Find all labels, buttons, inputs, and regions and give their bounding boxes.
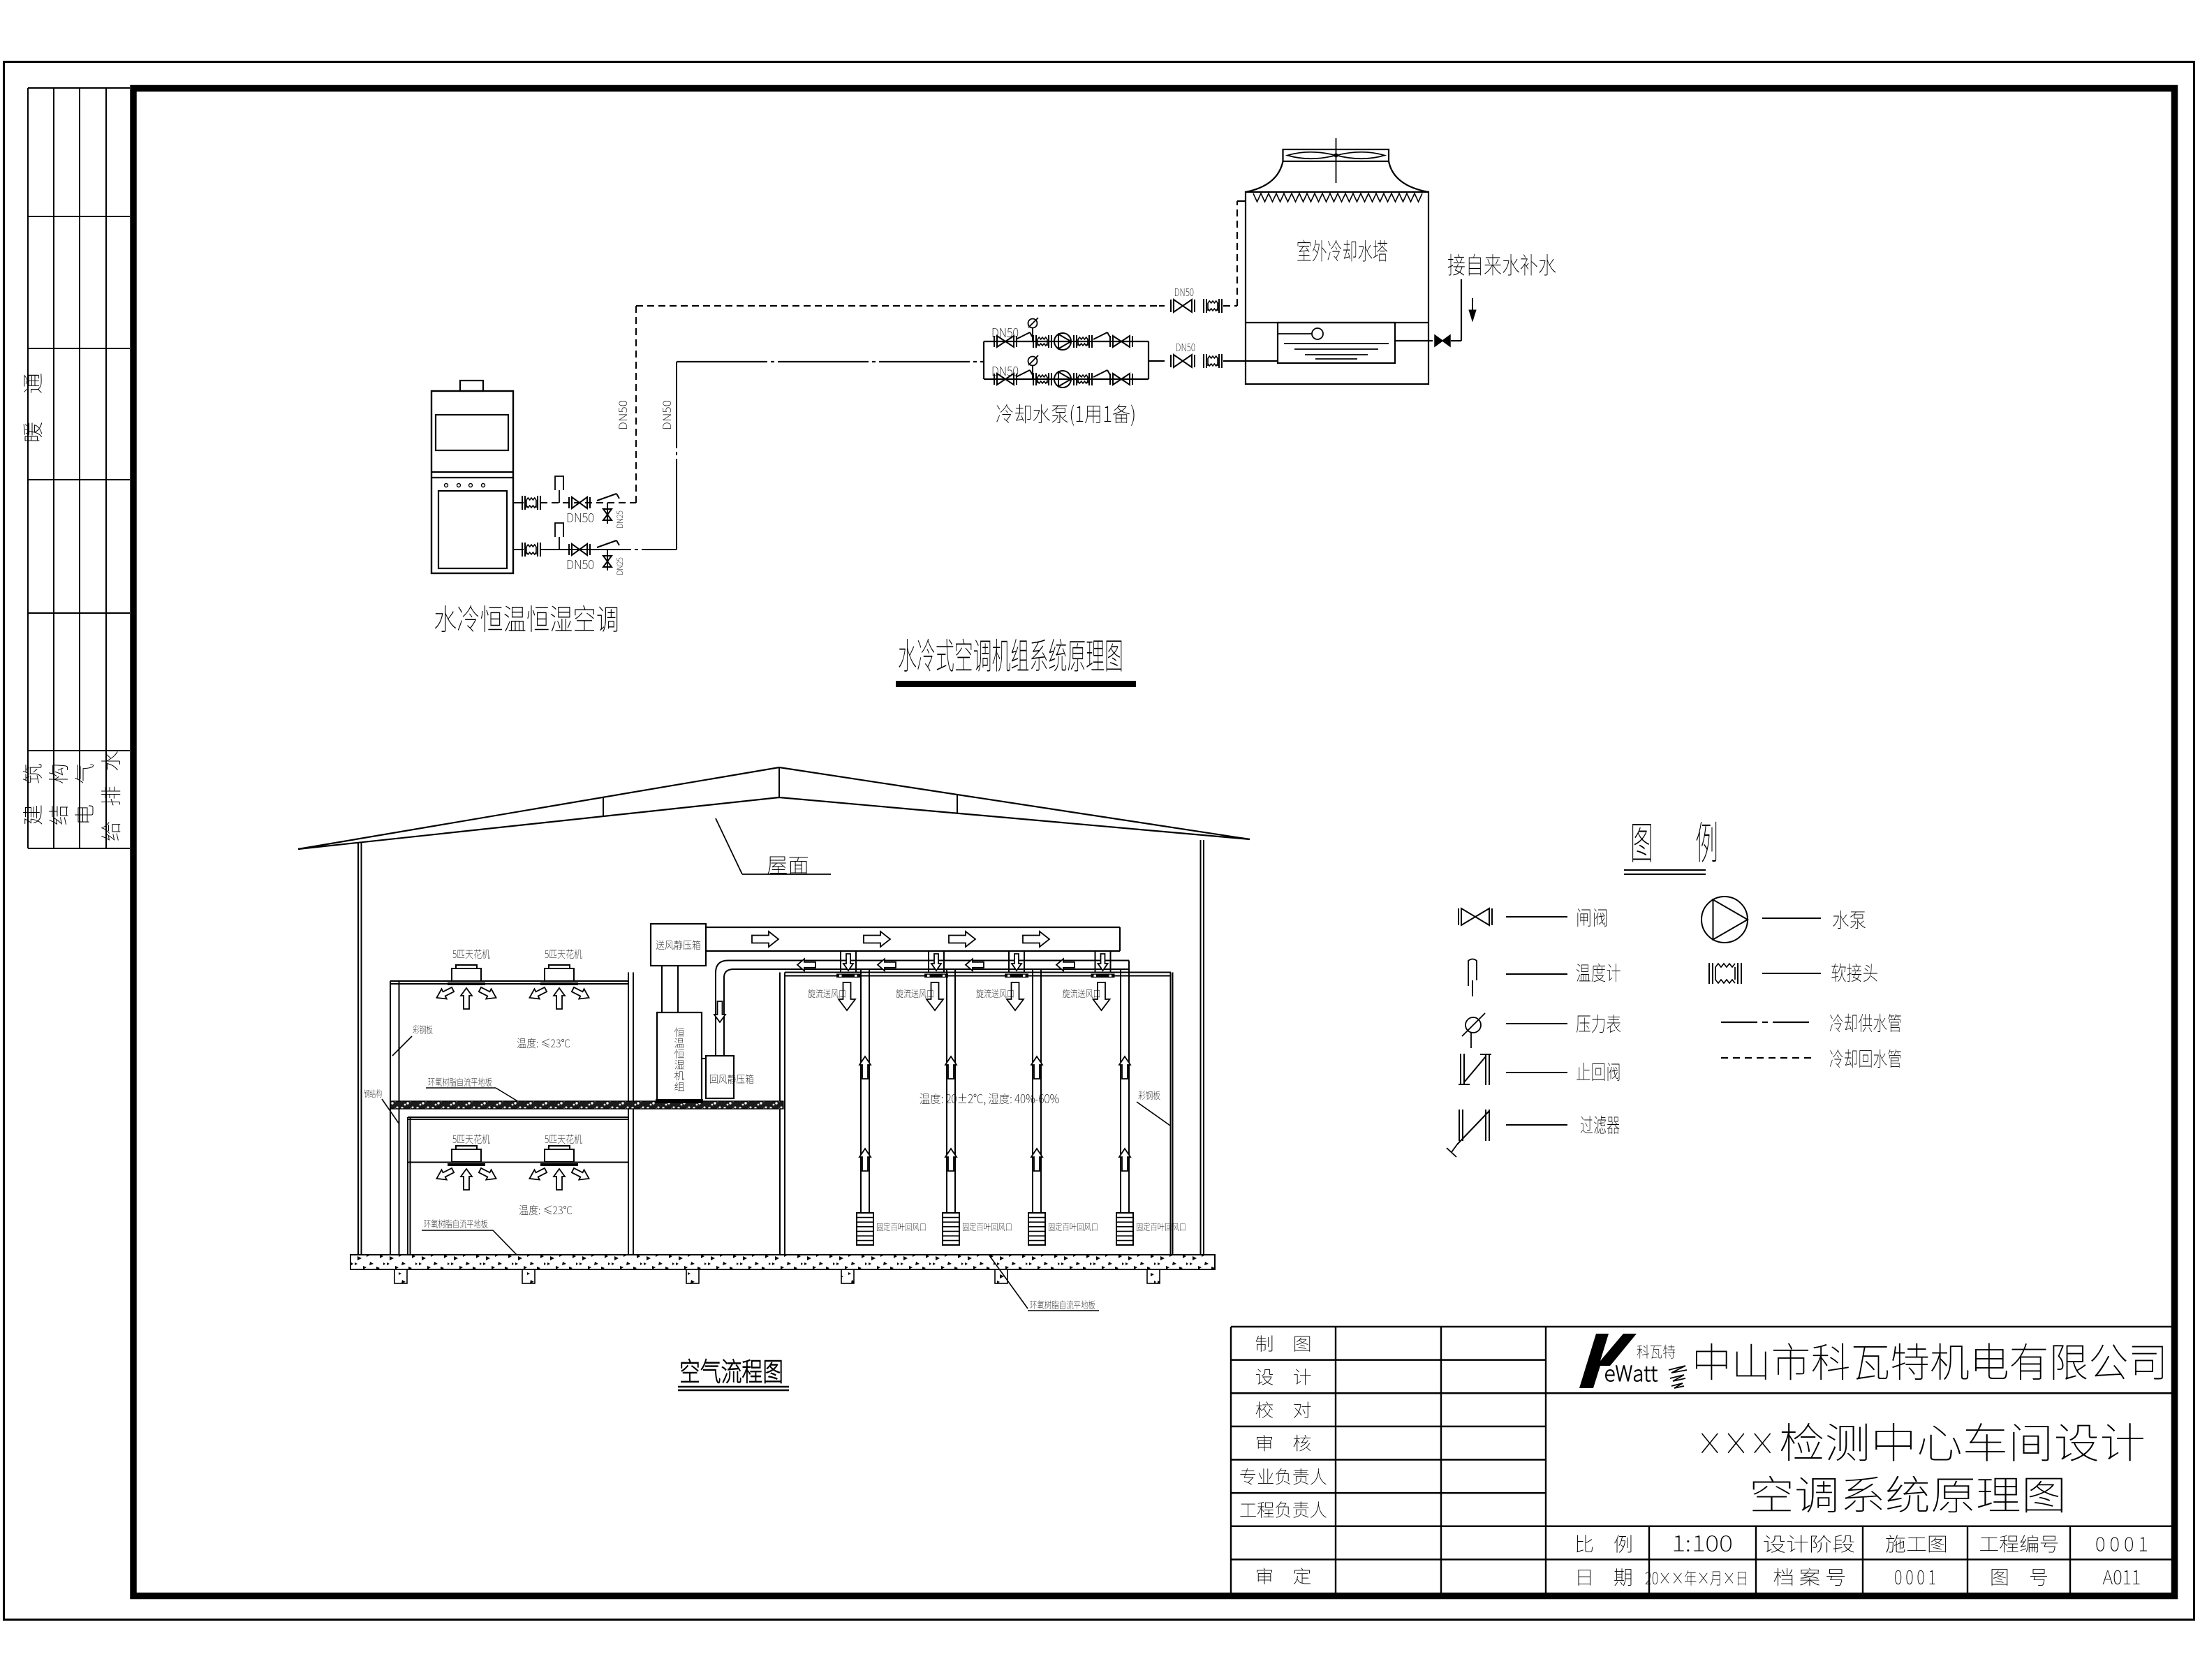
svg-text:回风静压箱: 回风静压箱 [709,1072,754,1086]
svg-text:1:100: 1:100 [1671,1527,1733,1558]
svg-text:旋流送风口: 旋流送风口 [976,987,1014,1001]
svg-text:旋流送风口: 旋流送风口 [1063,987,1101,1001]
svg-text:A011: A011 [2102,1563,2141,1591]
svg-text:固定百叶回风口: 固定百叶回风口 [962,1220,1012,1233]
svg-text:图: 图 [1630,808,1653,872]
svg-text:设计阶段: 设计阶段 [1763,1530,1856,1558]
svg-text:水冷式空调机组系统原理图: 水冷式空调机组系统原理图 [898,627,1123,679]
svg-text:钢结构: 钢结构 [364,1086,382,1100]
svg-text:空气流程图: 空气流程图 [679,1350,783,1389]
svg-text:固定百叶回风口: 固定百叶回风口 [1136,1220,1186,1233]
svg-text:5匹天花机: 5匹天花机 [545,1132,582,1147]
svg-text:温度: ≤23°C: 温度: ≤23°C [517,1034,570,1051]
svg-text:DN50: DN50 [658,400,674,430]
svg-text:固定百叶回风口: 固定百叶回风口 [1048,1220,1098,1233]
svg-text:eWatt: eWatt [1604,1357,1658,1387]
svg-text:环氧树脂自流平地板: 环氧树脂自流平地板 [424,1217,488,1231]
svg-text:暖: 暖 [16,422,47,443]
svg-text:温度: ≤23°C: 温度: ≤23°C [519,1201,573,1218]
svg-text:工程负责人: 工程负责人 [1239,1496,1327,1522]
svg-text:专业负责人: 专业负责人 [1239,1463,1327,1489]
svg-text:环氧树脂自流平地板: 环氧树脂自流平地板 [428,1075,492,1089]
svg-text:冷却回水管: 冷却回水管 [1829,1043,1902,1073]
svg-text:压力表: 压力表 [1576,1008,1621,1038]
svg-text:空调系统原理图: 空调系统原理图 [1749,1463,2067,1521]
svg-text:DN50: DN50 [991,362,1019,379]
svg-text:DN50: DN50 [1176,340,1195,355]
svg-text:档 案 号: 档 案 号 [1773,1563,1847,1591]
svg-text:5匹天花机: 5匹天花机 [452,1132,490,1147]
svg-text:20××年×月×日: 20××年×月×日 [1645,1565,1748,1589]
svg-text:闸阀: 闸阀 [1576,902,1609,931]
svg-text:制 图: 制 图 [1255,1330,1312,1356]
svg-text:水: 水 [94,751,125,772]
svg-text:温度计: 温度计 [1576,957,1621,987]
svg-text:给: 给 [94,820,125,841]
svg-text:DN50: DN50 [614,400,630,430]
svg-text:比 例: 比 例 [1574,1530,1633,1558]
svg-text:送风静压箱: 送风静压箱 [656,938,701,952]
svg-text:旋流送风口: 旋流送风口 [808,987,846,1001]
svg-text:工程编号: 工程编号 [1979,1530,2060,1558]
svg-text:检测中心车间设计: 检测中心车间设计 [1779,1410,2146,1471]
svg-text:室外冷却水塔: 室外冷却水塔 [1297,233,1388,267]
svg-text:通: 通 [16,373,47,394]
svg-text:5匹天花机: 5匹天花机 [545,947,582,961]
svg-text:屋面: 屋面 [767,848,809,879]
svg-text:排: 排 [94,786,125,806]
svg-text:DN25: DN25 [614,510,626,529]
svg-text:接自来水补水: 接自来水补水 [1447,246,1556,281]
svg-text:水冷恒温恒湿空调: 水冷恒温恒湿空调 [434,596,619,639]
svg-text:冷却供水管: 冷却供水管 [1829,1008,1902,1037]
svg-text:组: 组 [674,1080,684,1094]
svg-text:5匹天花机: 5匹天花机 [452,947,490,961]
svg-text:温度: 20±2°C, 湿度: 40%-60%: 温度: 20±2°C, 湿度: 40%-60% [920,1089,1059,1107]
svg-text:审 核: 审 核 [1255,1430,1312,1456]
svg-text:施工图: 施工图 [1885,1530,1948,1558]
svg-text:彩钢板: 彩钢板 [1138,1089,1160,1103]
svg-text:DN50: DN50 [991,323,1019,341]
svg-text:软接头: 软接头 [1831,957,1878,987]
svg-text:中山市科瓦特机电有限公司: 中山市科瓦特机电有限公司 [1692,1330,2168,1389]
svg-text:图 号: 图 号 [1990,1563,2048,1591]
svg-text:DN50: DN50 [566,508,594,526]
svg-text:DN50: DN50 [566,555,594,573]
svg-text:彩钢板: 彩钢板 [413,1023,433,1037]
svg-text:校 对: 校 对 [1255,1397,1312,1422]
svg-text:×××: ××× [1697,1419,1775,1465]
svg-text:环氧树脂自流平地板: 环氧树脂自流平地板 [1030,1298,1095,1312]
svg-text:设 计: 设 计 [1255,1363,1312,1389]
svg-text:止回阀: 止回阀 [1576,1056,1621,1086]
svg-text:旋流送风口: 旋流送风口 [896,987,934,1001]
svg-text:DN25: DN25 [614,557,626,575]
svg-text:例: 例 [1695,808,1718,872]
svg-text:0 0 0 1: 0 0 0 1 [2095,1530,2148,1558]
svg-text:过滤器: 过滤器 [1580,1110,1620,1139]
svg-text:日 期: 日 期 [1574,1563,1633,1591]
svg-text:0 0 0 1: 0 0 0 1 [1894,1563,1936,1591]
svg-text:冷却水泵(1用1备): 冷却水泵(1用1备) [996,397,1136,428]
svg-text:固定百叶回风口: 固定百叶回风口 [876,1220,926,1233]
svg-text:审 定: 审 定 [1255,1563,1312,1589]
svg-text:DN50: DN50 [1174,285,1194,300]
svg-text:水泵: 水泵 [1832,904,1866,934]
